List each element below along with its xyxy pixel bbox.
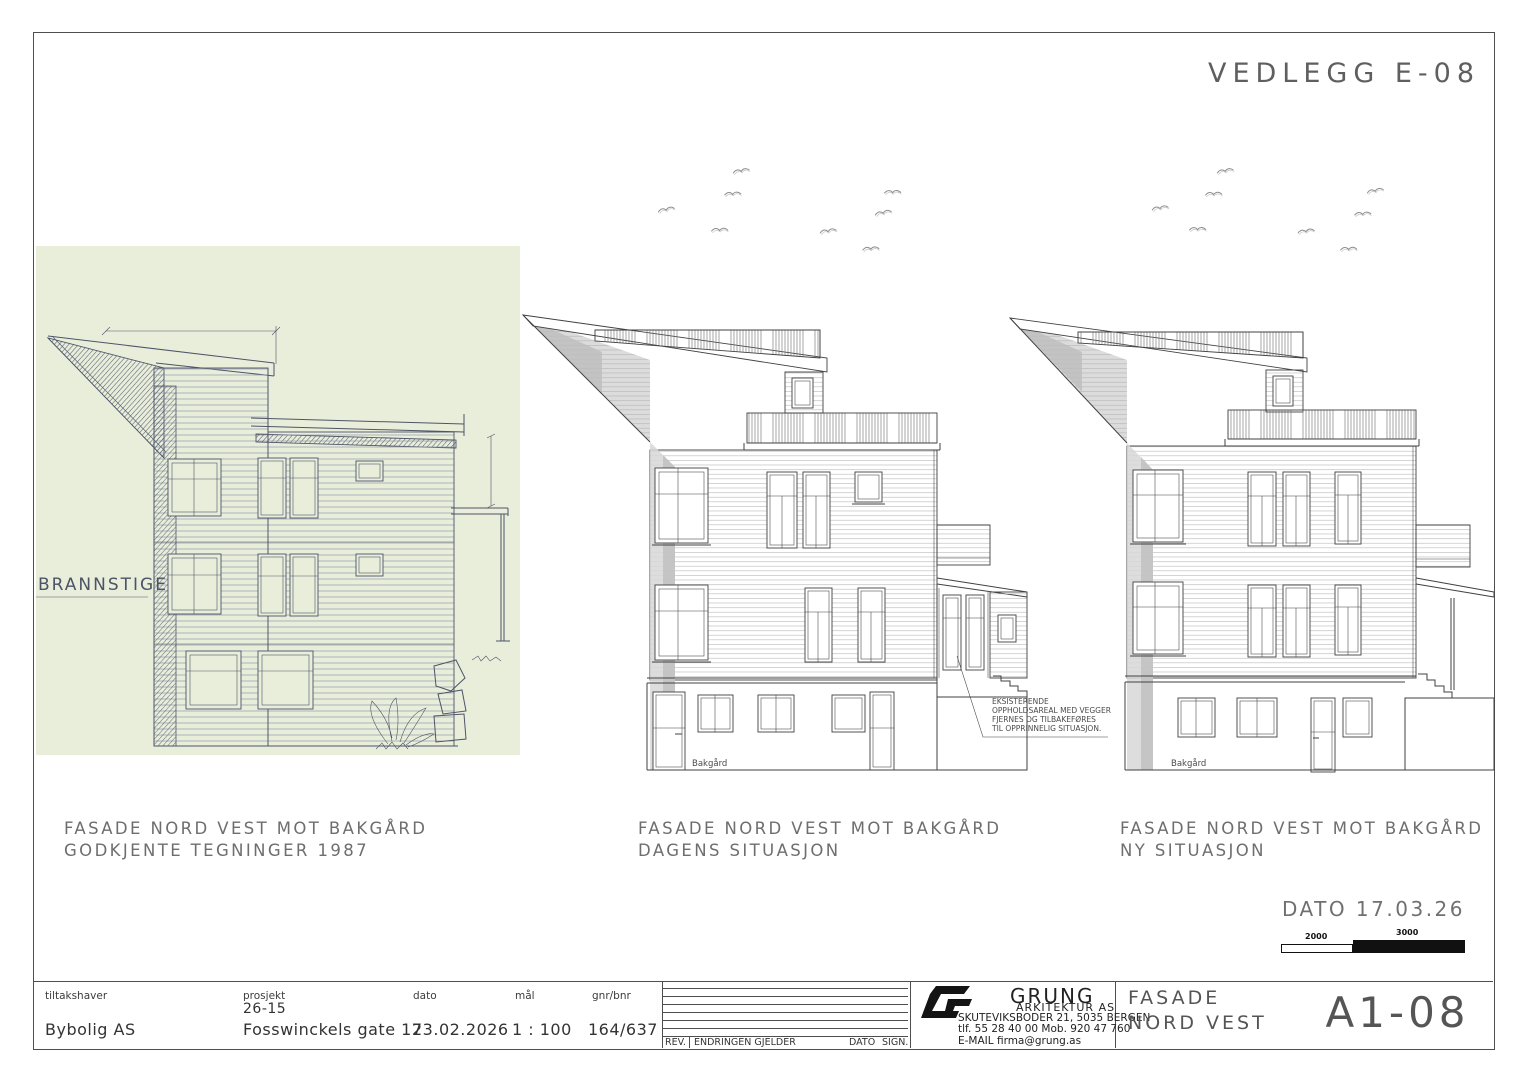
- maal-value: 1 : 100: [512, 1020, 572, 1039]
- drawing-godkjente-1987: BRANNSTIGE: [36, 246, 520, 755]
- balcony: [451, 434, 510, 641]
- caption-line1: FASADE NORD VEST MOT BAKGÅRD: [64, 818, 427, 840]
- attachment-label: VEDLEGG E-08: [1150, 58, 1480, 89]
- caption-line1: FASADE NORD VEST MOT BAKGÅRD: [1120, 818, 1483, 840]
- date-note: DATO 17.03.26: [1270, 897, 1465, 921]
- dato-label: dato: [413, 990, 437, 1002]
- porch-stairs: [1418, 674, 1452, 698]
- bakgard-label: Bakgård: [1171, 758, 1206, 769]
- caption-line1: FASADE NORD VEST MOT BAKGÅRD: [638, 818, 1001, 840]
- caption-line2: GODKJENTE TEGNINGER 1987: [64, 840, 427, 862]
- scale-segment-black: [1353, 940, 1465, 953]
- firm-email: E-MAIL firma@grung.as: [958, 1035, 1081, 1047]
- maal-label: mål: [515, 990, 535, 1002]
- drawing-ny-situasjon: Bakgård: [1008, 300, 1496, 790]
- bakgard-label: Bakgård: [692, 758, 727, 769]
- open-porch: [1405, 525, 1494, 770]
- caption-godkjente: FASADE NORD VEST MOT BAKGÅRD GODKJENTE T…: [64, 818, 427, 862]
- scale-bar: 2000 3000: [1281, 926, 1466, 958]
- caption-line2: DAGENS SITUASJON: [638, 840, 1001, 862]
- gnr-bnr-label: gnr/bnr: [592, 990, 631, 1002]
- bird-icon: [658, 168, 1384, 252]
- tiltakshaver-label: tiltakshaver: [45, 990, 107, 1002]
- sheet-number: A1-08: [1305, 988, 1490, 1037]
- terrain-mark: [472, 656, 501, 661]
- sign-label: SIGN.: [882, 1037, 908, 1048]
- tiltakshaver-value: Bybolig AS: [45, 1020, 136, 1039]
- drawing-sheet: VEDLEGG E-08: [0, 0, 1528, 1080]
- basement-openings: [653, 692, 894, 770]
- caption-ny: FASADE NORD VEST MOT BAKGÅRD NY SITUASJO…: [1120, 818, 1483, 862]
- dimension-line: [102, 326, 280, 364]
- scale-value-1: 2000: [1305, 932, 1327, 941]
- gnr-bnr-value: 164/637: [588, 1020, 658, 1039]
- rev-dato-label: DATO: [849, 1037, 875, 1048]
- prosjekt-value: Fosswinckels gate 17: [243, 1020, 423, 1039]
- scale-segment-white: [1281, 944, 1353, 953]
- dato-value: 23.02.2026: [412, 1020, 509, 1039]
- sheet-title: FASADE NORD VEST: [1128, 986, 1267, 1036]
- brannstige-label: BRANNSTIGE: [38, 575, 168, 595]
- birds-sketch: [600, 150, 1500, 270]
- endringen-label: ENDRINGEN GJELDER: [694, 1037, 796, 1048]
- caption-dagens: FASADE NORD VEST MOT BAKGÅRD DAGENS SITU…: [638, 818, 1001, 862]
- balcony-railing: [1228, 410, 1416, 439]
- firm-phone: tlf. 55 28 40 00 Mob. 920 47 760: [958, 1023, 1130, 1035]
- balcony-railing: [747, 413, 937, 443]
- rev-label: REV.: [665, 1037, 686, 1048]
- scale-value-2: 3000: [1396, 928, 1418, 937]
- prosjekt-number: 26-15: [243, 1001, 286, 1017]
- caption-line2: NY SITUASJON: [1120, 840, 1483, 862]
- basement-openings: [1178, 698, 1372, 772]
